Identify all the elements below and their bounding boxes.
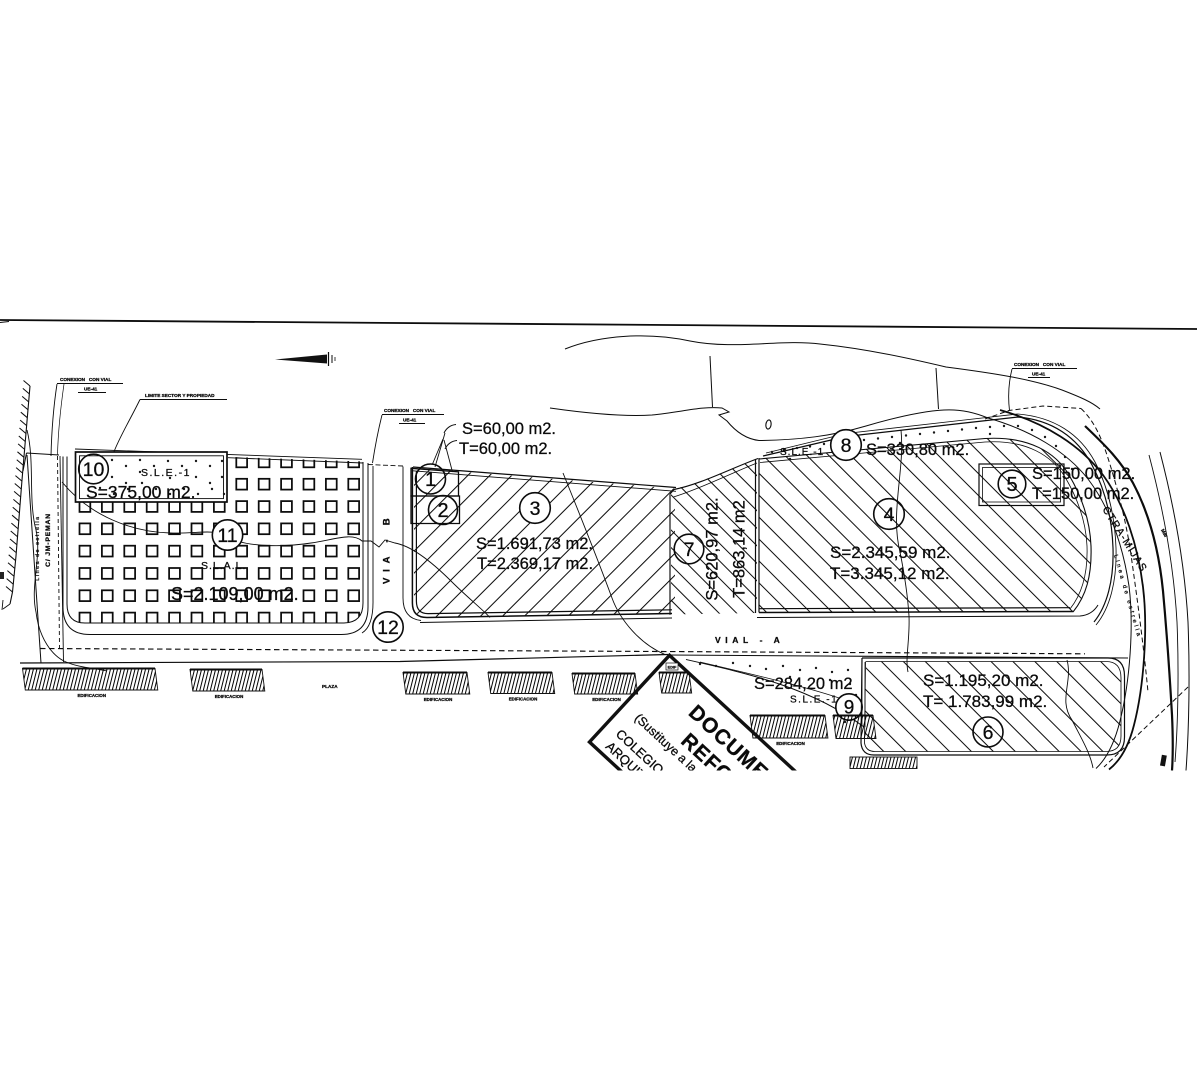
svg-text:EDIFICACION: EDIFICACION bbox=[509, 697, 538, 702]
svg-text:UE-41: UE-41 bbox=[1032, 372, 1046, 377]
svg-text:T=60,00 m2.: T=60,00 m2. bbox=[459, 440, 552, 458]
svg-text:11: 11 bbox=[217, 525, 237, 547]
svg-text:EDIF: EDIF bbox=[668, 666, 677, 670]
svg-text:UE-41: UE-41 bbox=[84, 387, 98, 392]
svg-text:8: 8 bbox=[841, 435, 852, 457]
svg-text:10: 10 bbox=[83, 459, 105, 481]
svg-text:CONEXION CON VIAL: CONEXION CON VIAL bbox=[1014, 362, 1065, 367]
svg-text:5: 5 bbox=[1006, 474, 1017, 496]
svg-text:S.L.E.-1: S.L.E.-1 bbox=[141, 467, 191, 479]
svg-text:EDIFICACION: EDIFICACION bbox=[77, 693, 106, 698]
svg-text:S.L.A.L.: S.L.A.L. bbox=[201, 560, 246, 572]
svg-text:3: 3 bbox=[530, 498, 541, 520]
svg-text:S.L.E.-1: S.L.E.-1 bbox=[780, 447, 824, 458]
svg-text:VIAL - A: VIAL - A bbox=[715, 635, 784, 645]
svg-text:EDIFICACION: EDIFICACION bbox=[424, 697, 453, 702]
svg-text:CONEXION CON VIAL: CONEXION CON VIAL bbox=[384, 408, 435, 413]
svg-text:7: 7 bbox=[684, 539, 695, 561]
svg-text:T=3.345,12 m2.: T=3.345,12 m2. bbox=[830, 564, 950, 583]
svg-text:S=2.109,00 m2.: S=2.109,00 m2. bbox=[171, 584, 299, 604]
svg-text:UE-41: UE-41 bbox=[403, 418, 417, 423]
svg-text:S=1.691,73 m2.: S=1.691,73 m2. bbox=[476, 535, 593, 553]
svg-text:T= 1.783,99 m2.: T= 1.783,99 m2. bbox=[923, 692, 1047, 711]
svg-text:S.L.E.-1: S.L.E.-1 bbox=[790, 695, 838, 706]
svg-text:S=330,80 m2.: S=330,80 m2. bbox=[866, 441, 969, 459]
svg-text:S=284,20 m2: S=284,20 m2 bbox=[754, 675, 853, 693]
svg-text:EDIFICACION: EDIFICACION bbox=[776, 741, 805, 746]
svg-text:1: 1 bbox=[425, 469, 436, 491]
svg-text:6: 6 bbox=[983, 722, 994, 744]
svg-text:2: 2 bbox=[437, 500, 448, 522]
svg-text:LIMITE SECTOR Y PROPIEDAD: LIMITE SECTOR Y PROPIEDAD bbox=[145, 393, 215, 398]
svg-text:S=2.345,59 m2.: S=2.345,59 m2. bbox=[830, 543, 951, 562]
svg-text:EDIFICACION: EDIFICACION bbox=[215, 694, 244, 699]
svg-text:PLAZA: PLAZA bbox=[322, 684, 338, 689]
svg-text:S=620,97 m2.: S=620,97 m2. bbox=[704, 497, 722, 600]
svg-text:S=375,00 m2.: S=375,00 m2. bbox=[86, 482, 195, 502]
svg-text:EDIFICACION: EDIFICACION bbox=[592, 697, 621, 702]
svg-text:T=863,14 m2: T=863,14 m2 bbox=[731, 500, 749, 598]
svg-text:T=2.369,17 m2.: T=2.369,17 m2. bbox=[477, 555, 593, 573]
svg-text:12: 12 bbox=[377, 617, 399, 639]
svg-text:4: 4 bbox=[884, 504, 895, 526]
svg-text:CONEXION CON VIAL: CONEXION CON VIAL bbox=[60, 377, 111, 382]
svg-text:VIA - B: VIA - B bbox=[382, 513, 393, 584]
svg-text:S=60,00 m2.: S=60,00 m2. bbox=[462, 420, 556, 438]
svg-text:C/ JM-PEMAN: C/ JM-PEMAN bbox=[45, 513, 52, 567]
svg-text:S=1.195,20 m2.: S=1.195,20 m2. bbox=[923, 671, 1044, 690]
